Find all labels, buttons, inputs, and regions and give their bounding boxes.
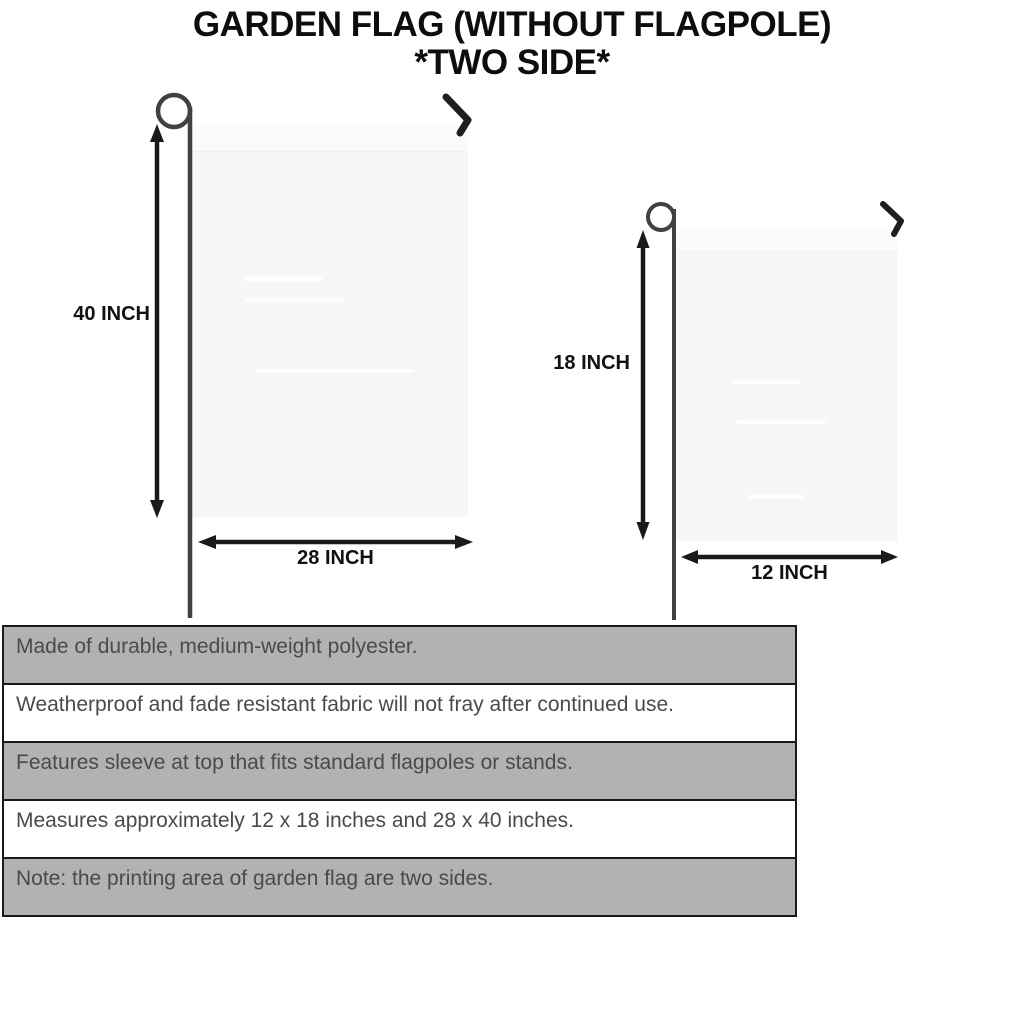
flagpole-loop-icon [158,95,190,127]
feature-row: Measures approximately 12 x 18 inches an… [2,799,797,859]
height-arrow-large [150,124,164,518]
width-label-large: 28 INCH [198,547,473,570]
flag-print-ghost [731,380,801,384]
flagpole-loop-icon [648,204,674,230]
large-garden-flag [192,126,468,517]
feature-row: Features sleeve at top that fits standar… [2,741,797,801]
height-label-small: 18 INCH [518,352,630,375]
flag-print-ghost [242,276,322,281]
width-label-small: 12 INCH [681,562,898,585]
feature-row: Weatherproof and fade resistant fabric w… [2,683,797,743]
height-arrow-small [637,230,650,540]
feature-row: Note: the printing area of garden flag a… [2,857,797,917]
page-title-line2: *TWO SIDE* [0,44,1024,82]
flag-print-ghost [746,495,806,499]
small-garden-flag [676,230,897,541]
flag-sleeve [676,230,897,252]
page-title-line1: GARDEN FLAG (WITHOUT FLAGPOLE) [0,6,1024,44]
feature-row: Made of durable, medium-weight polyester… [2,625,797,685]
title-block: GARDEN FLAG (WITHOUT FLAGPOLE) *TWO SIDE… [0,6,1024,82]
flag-print-ghost [245,298,345,302]
flag-print-ghost [255,369,415,373]
height-label-large: 40 INCH [30,303,150,326]
feature-table: Made of durable, medium-weight polyester… [2,625,797,917]
product-infographic: GARDEN FLAG (WITHOUT FLAGPOLE) *TWO SIDE… [0,0,1024,1024]
flag-sleeve [192,126,468,152]
flag-print-ghost [736,420,826,424]
